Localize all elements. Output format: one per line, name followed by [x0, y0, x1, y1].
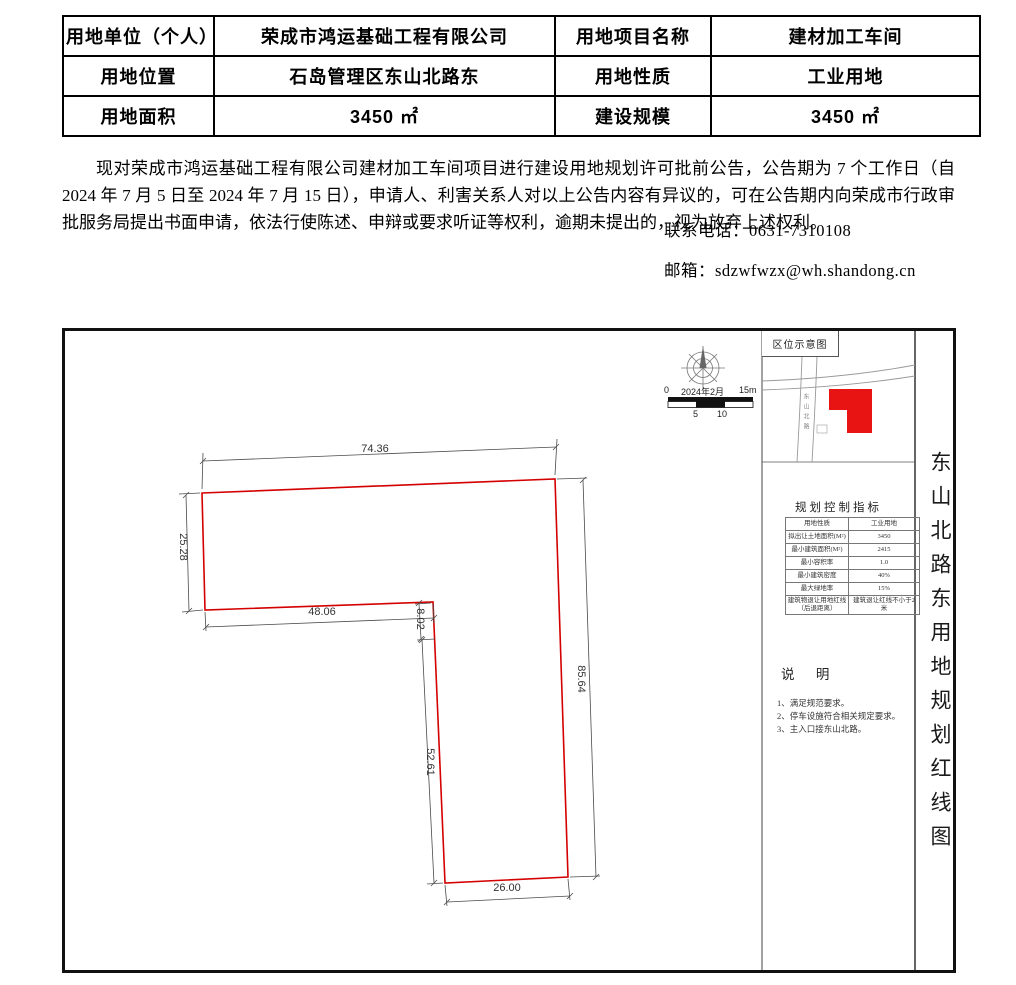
scale-start: 0 — [664, 385, 669, 395]
compass-rose-icon — [681, 346, 725, 390]
label-build-scale: 建设规模 — [555, 96, 711, 136]
inset-road — [762, 365, 915, 381]
table-row: 最小建筑面积(M²)2415 — [786, 544, 920, 557]
scale-bar — [668, 397, 753, 408]
inset-map — [762, 357, 915, 462]
inset-road — [762, 376, 915, 390]
table-row: 用地单位（个人） 荣成市鸿运基础工程有限公司 用地项目名称 建材加工车间 — [63, 16, 980, 56]
label-land-nature: 用地性质 — [555, 56, 711, 96]
inset-road — [812, 357, 817, 462]
indicators-title: 规划控制指标 — [762, 499, 915, 515]
note-item: 2、停车设施符合相关规定要求。 — [777, 710, 913, 723]
red-line-map-figure: 74.36 25.28 48.06 8.02 52.61 85.64 26.00… — [62, 328, 956, 973]
inset-parcel — [829, 389, 872, 433]
label-location: 用地位置 — [63, 56, 214, 96]
map-drawing — [65, 331, 953, 970]
dim-left: 25.28 — [177, 522, 189, 572]
value-land-area: 3450 ㎡ — [214, 96, 555, 136]
redline-polygon — [202, 479, 568, 883]
table-row: 拟出让土地面积(M²)3450 — [786, 531, 920, 544]
scale-date: 2024年2月 — [681, 385, 724, 398]
dimension-lines — [179, 439, 600, 906]
value-location: 石岛管理区东山北路东 — [214, 56, 555, 96]
value-land-nature: 工业用地 — [711, 56, 980, 96]
table-row: 用地位置 石岛管理区东山北路东 用地性质 工业用地 — [63, 56, 980, 96]
scale-end: 15m — [739, 385, 757, 395]
table-row: 用地性质工业用地 — [786, 518, 920, 531]
table-row: 用地面积 3450 ㎡ 建设规模 3450 ㎡ — [63, 96, 980, 136]
figure-side-title: 东山北路东用地规划红线图 — [916, 375, 955, 935]
note-item: 3、主入口接东山北路。 — [777, 723, 913, 736]
dim-bottom: 26.00 — [472, 882, 542, 894]
table-row: 最大绿地率15% — [786, 583, 920, 596]
notes-title: 说 明 — [781, 663, 838, 683]
dim-top: 74.36 — [340, 443, 410, 455]
contact-email: 邮箱：sdzwfwzx@wh.shandong.cn — [664, 257, 916, 281]
scale-tick-10: 10 — [717, 409, 727, 419]
inset-title: 区位示意图 — [762, 331, 839, 357]
land-use-info-table: 用地单位（个人） 荣成市鸿运基础工程有限公司 用地项目名称 建材加工车间 用地位… — [62, 15, 981, 137]
value-land-user: 荣成市鸿运基础工程有限公司 — [214, 16, 555, 56]
table-row: 建筑物退让用地红线（后退距离）建筑退让红线不小于2米 — [786, 596, 920, 615]
label-project-name: 用地项目名称 — [555, 16, 711, 56]
table-row: 最小建筑密度40% — [786, 570, 920, 583]
note-item: 1、满足规范要求。 — [777, 697, 913, 710]
value-project-name: 建材加工车间 — [711, 16, 980, 56]
indicators-table: 用地性质工业用地 拟出让土地面积(M²)3450 最小建筑面积(M²)2415 … — [785, 517, 920, 615]
label-land-user: 用地单位（个人） — [63, 16, 214, 56]
contact-phone: 联系电话：0631-7310108 — [664, 217, 851, 241]
dim-jog: 8.02 — [414, 594, 426, 644]
dim-inner: 48.06 — [287, 606, 357, 618]
inset-road-name: 东山北路 — [798, 393, 810, 433]
dim-leg: 52.61 — [424, 737, 436, 787]
label-land-area: 用地面积 — [63, 96, 214, 136]
scale-tick-5: 5 — [693, 409, 698, 419]
value-build-scale: 3450 ㎡ — [711, 96, 980, 136]
table-row: 最小容积率1.0 — [786, 557, 920, 570]
dim-right: 85.64 — [575, 654, 587, 704]
